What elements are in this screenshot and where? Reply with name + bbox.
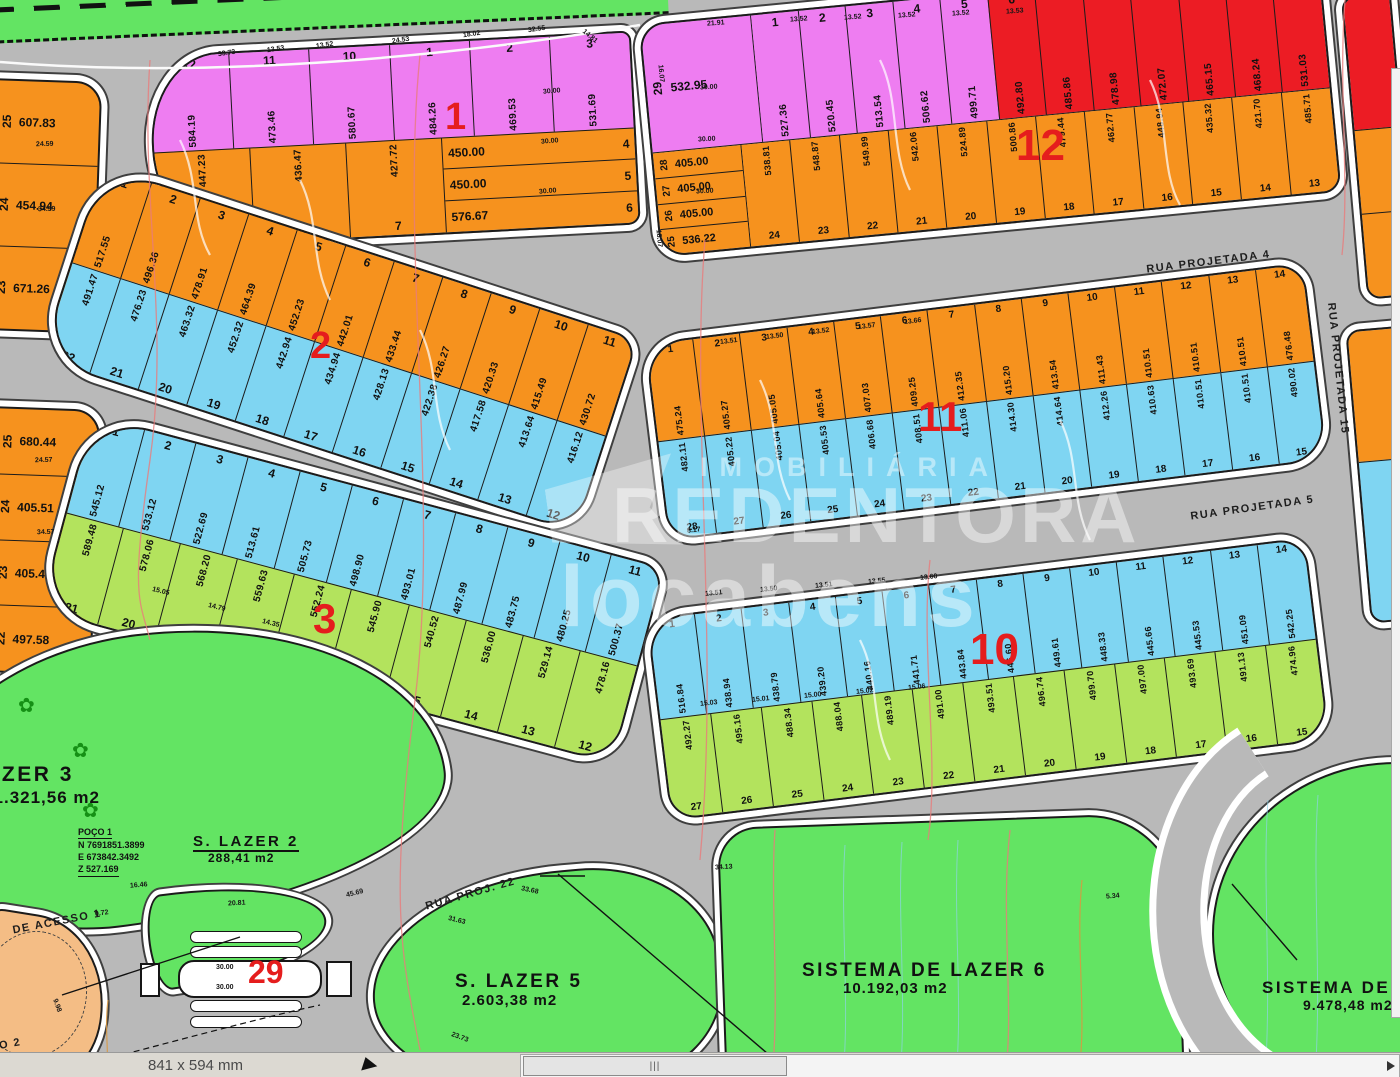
lot-number: 6 <box>362 256 372 269</box>
lot-area: 496.74 <box>1034 676 1048 707</box>
lot-area: 414.64 <box>1052 396 1066 427</box>
lot-area: 449.61 <box>1049 637 1063 668</box>
lot-number: 19 <box>206 396 222 412</box>
lot-area: 445.66 <box>1143 625 1157 656</box>
road-stripe <box>190 1000 302 1012</box>
lot-number: 13 <box>1309 179 1321 190</box>
dimension-label: 8.17 <box>687 526 701 534</box>
lot-number: 12 <box>1182 556 1194 567</box>
lot-number: 3 <box>763 608 770 619</box>
lot-area: 410.63 <box>1146 384 1160 415</box>
lot-number: 12 <box>182 58 196 71</box>
lot-number: 14 <box>448 475 464 491</box>
road-marking <box>326 961 352 997</box>
dimension-label: 13.52 <box>844 13 862 21</box>
lot-area: 412.26 <box>1099 390 1113 421</box>
lot-number: 2 <box>163 439 173 452</box>
lot-area: 415.49 <box>529 376 550 411</box>
lot-number: 8 <box>995 304 1002 315</box>
dimension-label: 13.52 <box>790 15 808 23</box>
lot-area: 420.33 <box>480 360 501 395</box>
lot-area: 426.27 <box>432 344 453 379</box>
map-canvas[interactable]: 12584.1911473.4610580.671484.262469.5335… <box>0 0 1400 1077</box>
lot-area: 568.20 <box>195 553 214 588</box>
lot-area: 421.70 <box>1252 98 1265 129</box>
lot-area: 405.22 <box>724 436 738 467</box>
lot-area: 545.90 <box>366 599 385 634</box>
lot-area: 499.71 <box>967 85 981 119</box>
lot-number: 24 <box>768 231 780 242</box>
lot-area: 505.73 <box>296 538 315 573</box>
lot-area: 506.62 <box>919 90 933 124</box>
road-stripe <box>190 1016 302 1028</box>
lot-area: 531.69 <box>587 93 600 127</box>
lot-area: 580.67 <box>347 105 360 139</box>
lot-number: 7 <box>948 310 955 321</box>
lot-area: 680.44 <box>19 434 56 449</box>
quadra-11-number: 11 <box>918 396 962 438</box>
lot-cell: 12584.19 <box>149 53 234 152</box>
lot-area: 549.99 <box>859 136 872 167</box>
lot-area: 440.16 <box>862 660 876 691</box>
lot-number: 3 <box>217 208 227 221</box>
quadra-12-west-col: 28405.0027405.0026405.0025536.22 <box>653 145 751 255</box>
lot-area: 463.32 <box>177 303 198 338</box>
lot-number: 26 <box>741 796 753 807</box>
quadra-1-orange-stack: 450.004450.005576.676 <box>441 128 638 232</box>
lot-area: 536.00 <box>480 629 499 664</box>
lot-area: 482.11 <box>677 442 691 472</box>
lot-number: 27 <box>733 516 745 527</box>
lot-number: 22 <box>943 771 955 782</box>
lot-number: 6 <box>1008 0 1016 6</box>
quadra-10-number: 10 <box>970 628 1019 672</box>
lot-number: 16 <box>1245 734 1257 745</box>
lot-area: 411.43 <box>1094 354 1108 384</box>
dimension-label: 34.13 <box>715 864 733 872</box>
horizontal-scrollbar-thumb[interactable]: ||| <box>523 1056 787 1076</box>
lot-area: 468.24 <box>1250 58 1264 92</box>
lot-number: 15 <box>1295 447 1307 458</box>
lot-number: 14 <box>1274 270 1286 281</box>
dimension-label: 16.07 <box>657 64 666 82</box>
lot-area: 472.07 <box>1156 67 1170 101</box>
lot-number: 26 <box>780 511 792 522</box>
lot-cell: 25607.83 <box>0 80 100 166</box>
dimension-label: 18.07 <box>655 229 664 247</box>
lot-number: 25 <box>0 115 14 129</box>
lot-number: 2 <box>818 11 826 24</box>
lot-number: 14 <box>1275 545 1287 556</box>
lot-number: 7 <box>1055 0 1063 1</box>
dimension-label: 20.81 <box>228 900 246 908</box>
lot-area: 465.15 <box>1203 63 1217 97</box>
lot-number: 21 <box>916 217 928 228</box>
lot-area: 492.27 <box>681 719 695 750</box>
leisure-2-label: S. LAZER 2 <box>193 833 299 852</box>
lot-area: 490.02 <box>1286 367 1300 398</box>
lot-number: 15 <box>1210 188 1222 199</box>
lot-area: 491.47 <box>80 272 101 307</box>
quadra-29-number: 29 <box>248 956 284 988</box>
road-marking <box>140 963 160 997</box>
lot-number: 9 <box>1042 299 1049 310</box>
lot-area: 417.58 <box>468 398 489 433</box>
lot-area: 485.86 <box>1061 76 1075 110</box>
lot-number: 1 <box>669 620 676 631</box>
lot-area: 516.84 <box>674 683 688 714</box>
dimension-label: 34.59 <box>38 206 56 214</box>
lot-number: 20 <box>965 212 977 223</box>
lot-area: 442.94 <box>274 335 295 370</box>
lot-area: 531.03 <box>1298 53 1312 87</box>
lot-number: 25 <box>0 434 14 448</box>
dimension-label: 13.51 <box>705 589 723 598</box>
lot-number: 16 <box>351 444 367 460</box>
lot-number: 29 <box>650 81 665 96</box>
lot-number: 19 <box>1094 752 1106 763</box>
leisure-right-label: SISTEMA DE LAZER <box>1262 978 1400 998</box>
lot-number: 24 <box>0 198 11 212</box>
tree-icon: ✿ <box>72 738 89 763</box>
lot-area: 414.30 <box>1005 401 1019 432</box>
lot-number: 18 <box>1144 746 1156 757</box>
dimension-label: 30.00 <box>698 136 716 144</box>
lot-area: 473.46 <box>267 110 280 144</box>
lot-number: 22 <box>967 488 979 499</box>
lot-area: 413.64 <box>517 414 538 449</box>
lot-area: 435.32 <box>1203 103 1216 134</box>
lot-number: 23 <box>0 281 8 295</box>
lot-area: 478.91 <box>189 265 210 300</box>
dimension-label: 34.57 <box>37 529 55 537</box>
lot-area: 427.72 <box>389 143 402 177</box>
lot-area: 405.53 <box>817 425 831 456</box>
lot-area: 442.01 <box>335 313 356 348</box>
lot-area: 498.90 <box>348 552 367 587</box>
page-size-label: 841 x 594 mm <box>148 1057 243 1074</box>
lot-number: 17 <box>1112 198 1124 209</box>
lot-area: 415.20 <box>1000 365 1014 396</box>
lot-area: 433.44 <box>383 328 404 363</box>
dimension-label: 13.51 <box>815 581 833 590</box>
lot-area: 488.04 <box>832 700 846 731</box>
lot-number: 6 <box>371 494 381 507</box>
lot-number: 13 <box>1227 275 1239 286</box>
lot-area: 542.25 <box>1284 608 1298 639</box>
dimension-label: 13.55 <box>868 577 886 586</box>
street-label-rua-projetada-15: RUA PROJETADA 15 <box>1325 302 1351 435</box>
lot-number: 9 <box>1044 574 1051 585</box>
lot-number: 25 <box>791 789 803 800</box>
horizontal-scrollbar[interactable]: ||| <box>520 1054 1400 1077</box>
lot-number: 12 <box>1180 281 1192 292</box>
road-stripe <box>190 931 302 943</box>
status-bar: 841 x 594 mm ||| <box>0 1052 1400 1077</box>
lot-cell: 3531.69 <box>550 33 634 132</box>
lot-area: 405.04 <box>771 430 785 461</box>
lot-area: 488.34 <box>782 707 796 738</box>
leisure-6-area: 10.192,03 m2 <box>843 980 948 997</box>
lot-area: 538.81 <box>761 145 774 176</box>
lot-cell: 15474.96 <box>1266 639 1328 744</box>
lot-area: 405.27 <box>719 399 733 430</box>
lot-number: 22 <box>0 631 8 645</box>
lot-number: 11 <box>1133 287 1145 298</box>
lot-number: 24 <box>874 499 886 510</box>
lot-area: 484.26 <box>427 101 440 135</box>
lot-area: 413.54 <box>1047 359 1061 390</box>
lot-number: 23 <box>921 493 933 504</box>
lot-number: 18 <box>254 412 270 428</box>
lot-area: 464.39 <box>238 281 259 316</box>
lot-area: 584.19 <box>186 114 199 148</box>
lot-area: 405.05 <box>766 394 780 425</box>
lot-area: 559.63 <box>252 568 271 603</box>
lot-area: 475.24 <box>672 405 686 436</box>
dimension-label: 13.53 <box>1006 7 1024 15</box>
lot-area: 407.03 <box>860 382 874 413</box>
lot-number: 14 <box>463 708 479 723</box>
lot-area: 491.13 <box>1236 651 1250 682</box>
lot-cell: 10580.67 <box>309 45 394 144</box>
lot-cell: 2469.53 <box>470 37 555 136</box>
lot-area: 480.25 <box>555 608 574 643</box>
lot-number: 7 <box>411 271 421 284</box>
lot-number: 22 <box>60 349 76 365</box>
lot-number: 13 <box>520 723 536 738</box>
lot-number: 18 <box>1155 465 1167 476</box>
lot-area: 487.99 <box>451 580 470 615</box>
lot-area: 410.51 <box>1192 378 1206 409</box>
lot-number: 5 <box>319 481 329 494</box>
lot-area: 529.14 <box>537 644 556 679</box>
lot-area: 671.26 <box>13 281 50 296</box>
leisure-3-area: 11.321,56 m2 <box>0 788 100 808</box>
lot-area: 483.75 <box>503 594 522 629</box>
lot-area: 589.48 <box>80 522 99 557</box>
lot-number: 18 <box>1063 202 1075 213</box>
lot-number: 25 <box>827 505 839 516</box>
lot-number: 11 <box>1135 562 1147 573</box>
lot-number: 9 <box>527 536 537 549</box>
lot-area: 493.51 <box>983 682 997 713</box>
lot-number: 17 <box>303 428 319 444</box>
lot-area: 540.52 <box>423 614 442 649</box>
lot-number: 2 <box>716 614 723 625</box>
leisure-5-area: 2.603,38 m2 <box>462 992 557 1009</box>
lot-area: 492.80 <box>1014 81 1028 115</box>
lot-number: 21 <box>1014 482 1026 493</box>
lot-area: 522.69 <box>192 511 211 546</box>
lot-number: 15 <box>1296 727 1308 738</box>
tree-icon: ✿ <box>18 693 35 718</box>
lot-area: 500.37 <box>607 622 626 657</box>
dimension-label: 13.52 <box>898 11 916 19</box>
lot-area: 542.06 <box>908 131 921 162</box>
lot-number: 1 <box>111 425 121 438</box>
lot-area: 410.51 <box>1141 348 1155 379</box>
lot-area: 410.51 <box>1235 336 1249 367</box>
lot-area: 536.22 <box>682 232 717 247</box>
lot-number: 10 <box>342 50 356 63</box>
leisure-5-label: S. LAZER 5 <box>455 971 582 993</box>
lot-number: 14 <box>1259 183 1271 194</box>
lot-number: 28 <box>658 159 670 171</box>
lot-area: 499.70 <box>1084 669 1098 700</box>
lot-area: 441.71 <box>909 654 923 685</box>
dimension-label: 13.50 <box>760 585 778 594</box>
lot-area: 451.09 <box>1237 614 1251 645</box>
lot-area: 447.23 <box>197 153 210 187</box>
lot-area: 405.47 <box>15 566 52 581</box>
lot-number: 11 <box>627 563 642 578</box>
dimension-label: 24.59 <box>36 141 54 149</box>
lot-number: 24 <box>842 783 854 794</box>
lot-area: 497.00 <box>1135 663 1149 694</box>
leisure-6-label: SISTEMA DE LAZER 6 <box>802 960 1047 982</box>
lot-area: 533.12 <box>140 497 159 532</box>
lot-area: 410.51 <box>1188 342 1202 373</box>
cursor-icon <box>361 1057 379 1075</box>
lot-number: 11 <box>602 334 618 349</box>
lot-area: 406.68 <box>864 419 878 450</box>
lot-number: 23 <box>0 566 10 580</box>
lot-area: 489.19 <box>883 694 897 725</box>
lot-number: 23 <box>818 226 830 237</box>
lot-area: 430.72 <box>577 391 598 426</box>
dimension-label: 45.69 <box>345 888 364 899</box>
lot-number: 16 <box>1249 453 1261 464</box>
lot-number: 6 <box>903 591 910 602</box>
lot-number: 19 <box>1108 470 1120 481</box>
quadra-12-magenta-row: 1527.362520.453513.544506.625499.71 <box>751 0 999 142</box>
lot-number: 11 <box>263 54 276 67</box>
lot-number: 5 <box>314 240 324 253</box>
lot-number: 13 <box>1228 550 1240 561</box>
vertical-scrollbar[interactable] <box>1391 68 1400 1018</box>
lot-area: 448.33 <box>1096 631 1110 662</box>
lot-area: 478.98 <box>1109 72 1123 106</box>
lot-number: 7 <box>950 585 957 596</box>
lot-number: 8 <box>459 287 469 300</box>
lot-number: 2 <box>168 193 178 206</box>
lot-number: 9 <box>508 303 518 316</box>
lot-number: 25 <box>666 236 678 248</box>
lot-area: 445.53 <box>1190 619 1204 650</box>
lot-area: 410.51 <box>1239 373 1253 404</box>
lot-number: 5 <box>624 168 631 182</box>
dimension-label: 30.00 <box>696 188 714 196</box>
lot-area: 438.79 <box>768 671 782 702</box>
lot-area: 493.69 <box>1185 657 1199 688</box>
lot-number: 10 <box>575 549 591 564</box>
lot-number: 13 <box>497 491 513 507</box>
lot-area: 496.36 <box>141 250 162 285</box>
leisure-area-right <box>1212 762 1400 1077</box>
quadra-2-number: 2 <box>310 327 331 365</box>
lot-number: 20 <box>1044 758 1056 769</box>
lot-area: 497.58 <box>12 632 49 647</box>
lot-number: 5 <box>856 597 863 608</box>
lot-number: 1 <box>426 46 433 58</box>
lot-area: 476.23 <box>128 288 149 323</box>
lot-area: 452.23 <box>286 297 307 332</box>
lot-number: 3 <box>215 453 225 466</box>
lot-number: 10 <box>1086 293 1098 304</box>
leisure-2-area: 288,41 m2 <box>208 851 274 865</box>
lot-area: 513.54 <box>872 94 886 128</box>
lot-number: 2 <box>506 42 513 54</box>
leisure-3-label: SISTEMA DE LAZER 3 <box>0 763 74 787</box>
road-stripe <box>190 946 302 958</box>
lot-area: 438.94 <box>721 677 735 708</box>
lot-area: 405.51 <box>17 500 54 515</box>
lot-number: 4 <box>265 224 275 237</box>
lot-number: 1 <box>120 177 130 190</box>
lot-number: 27 <box>661 185 673 197</box>
lot-area: 478.16 <box>594 660 613 695</box>
lot-number: 27 <box>690 802 702 813</box>
lot-area: 405.00 <box>674 155 709 170</box>
scroll-right-arrow-icon[interactable] <box>1387 1061 1395 1071</box>
lot-number: 20 <box>157 380 173 396</box>
lot-number: 15 <box>400 459 416 475</box>
lot-area: 469.53 <box>507 97 520 131</box>
lot-area: 491.00 <box>933 688 947 719</box>
lot-number: 24 <box>0 500 12 514</box>
lot-number: 8 <box>997 580 1004 591</box>
dimension-label: 13.52 <box>952 9 970 17</box>
lot-area: 607.83 <box>19 115 56 130</box>
lot-number: 17 <box>1195 740 1207 751</box>
leisure-area-6 <box>717 812 1186 1077</box>
lot-number: 12 <box>545 507 561 523</box>
lot-area: 450.00 <box>448 144 485 160</box>
quadra-3-number: 3 <box>313 598 336 640</box>
lot-area: 476.48 <box>1282 330 1296 361</box>
lot-area: 495.16 <box>731 713 745 744</box>
lot-number: 22 <box>867 221 879 232</box>
dimension-label: 32.55 <box>528 25 546 34</box>
lot-number: 4 <box>809 603 816 614</box>
lot-number: 17 <box>1202 459 1214 470</box>
quadra-1-number: 1 <box>445 98 466 136</box>
leisure-right-area: 9.478,48 m2 <box>1303 997 1393 1013</box>
lot-number: 3 <box>866 7 874 20</box>
lot-area: 576.67 <box>451 208 488 224</box>
lot-number: 21 <box>109 365 125 381</box>
lot-number: 7 <box>395 220 402 232</box>
dimension-label: 30.00 <box>700 84 718 92</box>
lot-number: 20 <box>1061 476 1073 487</box>
lot-area: 527.36 <box>777 104 791 138</box>
street-label-rua-projetada-5: RUA PROJETADA 5 <box>1190 493 1315 522</box>
lot-number: 4 <box>622 137 629 151</box>
lot-area: 474.96 <box>1286 645 1300 676</box>
lot-area: 450.00 <box>449 176 486 192</box>
dimension-label: 13.60 <box>920 573 938 582</box>
lot-number: 6 <box>626 200 633 214</box>
lot-number: 4 <box>267 467 277 480</box>
lot-cell: 13485.71 <box>1282 89 1340 195</box>
lot-number: 1 <box>667 345 674 356</box>
dimension-label: 24.57 <box>35 457 53 465</box>
lot-area: 517.55 <box>92 234 113 269</box>
quadra-10-block: 1516.842438.943438.794439.205440.166441.… <box>646 537 1330 820</box>
lot-area: 513.61 <box>244 525 263 560</box>
lot-number: 10 <box>553 318 569 334</box>
